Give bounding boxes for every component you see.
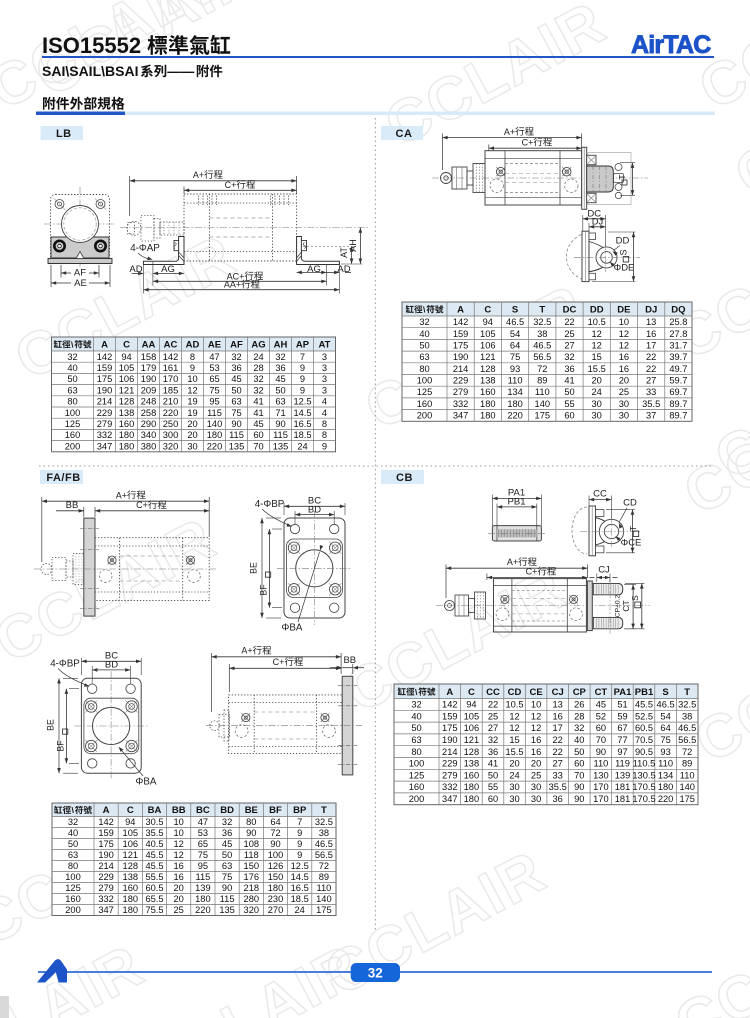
svg-text:24: 24 [297, 441, 307, 451]
svg-text:142: 142 [163, 352, 179, 362]
svg-text:36: 36 [553, 794, 563, 804]
svg-text:64: 64 [510, 340, 520, 350]
svg-text:72: 72 [537, 364, 547, 374]
svg-text:A: A [457, 305, 464, 316]
svg-text:63: 63 [222, 861, 232, 871]
svg-text:279: 279 [98, 883, 114, 893]
svg-text:38: 38 [682, 711, 692, 721]
svg-text:110: 110 [316, 883, 331, 893]
svg-text:60: 60 [564, 411, 574, 421]
svg-text:46.5: 46.5 [315, 839, 333, 849]
svg-text:75: 75 [198, 850, 208, 860]
svg-text:39.7: 39.7 [669, 352, 687, 362]
svg-text:220: 220 [207, 441, 223, 451]
svg-text:59: 59 [617, 711, 627, 721]
svg-text:CE: CE [529, 687, 542, 698]
svg-text:S: S [630, 595, 640, 601]
svg-text:49.7: 49.7 [669, 364, 687, 374]
svg-text:158: 158 [141, 352, 157, 362]
svg-text:46.5: 46.5 [678, 723, 696, 733]
svg-text:36: 36 [488, 747, 498, 757]
svg-text:128: 128 [119, 397, 135, 407]
svg-text:C+: C+ [136, 500, 148, 510]
svg-text:200: 200 [409, 794, 425, 804]
svg-text:45.5: 45.5 [145, 850, 163, 860]
svg-text:BD: BD [220, 805, 234, 816]
svg-text:CP: CP [573, 687, 587, 698]
svg-text:3: 3 [322, 374, 327, 384]
svg-text:25: 25 [174, 905, 184, 915]
svg-text:10: 10 [531, 700, 541, 710]
svg-text:4-ΦBP: 4-ΦBP [50, 659, 80, 670]
svg-text:37: 37 [646, 411, 656, 421]
svg-text:45: 45 [253, 419, 263, 429]
svg-text:45: 45 [222, 839, 232, 849]
svg-text:90: 90 [231, 419, 241, 429]
svg-text:20: 20 [174, 894, 184, 904]
svg-text:3: 3 [322, 352, 327, 362]
svg-text:190: 190 [141, 374, 157, 384]
svg-text:53: 53 [198, 828, 208, 838]
svg-text:25: 25 [488, 711, 498, 721]
svg-text:229: 229 [97, 408, 113, 418]
svg-text:16.5: 16.5 [293, 419, 311, 429]
svg-text:BE: BE [249, 562, 259, 574]
svg-text:CJ: CJ [598, 564, 610, 575]
svg-text:75: 75 [231, 408, 241, 418]
svg-text:138: 138 [123, 872, 139, 882]
svg-text:DJ: DJ [645, 305, 657, 316]
svg-text:9: 9 [297, 839, 302, 849]
svg-text:CB: CB [396, 472, 413, 484]
svg-text:332: 332 [98, 894, 114, 904]
svg-text:119: 119 [615, 759, 630, 769]
svg-text:90: 90 [246, 828, 256, 838]
svg-text:115: 115 [273, 430, 288, 440]
svg-text:16: 16 [531, 735, 541, 745]
svg-text:AE: AE [74, 278, 87, 289]
svg-text:13: 13 [646, 317, 656, 327]
svg-text:30: 30 [619, 411, 629, 421]
svg-text:218: 218 [244, 883, 260, 893]
svg-text:35.5: 35.5 [145, 828, 163, 838]
svg-text:30: 30 [531, 782, 541, 792]
svg-text:180: 180 [207, 430, 223, 440]
svg-text:16: 16 [174, 872, 184, 882]
svg-text:340: 340 [141, 430, 157, 440]
svg-text:AA+: AA+ [224, 280, 241, 290]
svg-text:38: 38 [537, 329, 547, 339]
svg-text:12: 12 [187, 385, 197, 395]
svg-text:126: 126 [268, 861, 284, 871]
svg-text:53: 53 [209, 363, 219, 373]
svg-text:T: T [617, 174, 627, 179]
svg-text:279: 279 [442, 770, 458, 780]
svg-text:121: 121 [123, 850, 139, 860]
svg-text:125: 125 [65, 419, 81, 429]
svg-text:32: 32 [253, 385, 263, 395]
svg-text:32: 32 [419, 317, 429, 327]
svg-text:51: 51 [617, 700, 627, 710]
svg-text:20: 20 [174, 883, 184, 893]
svg-text:50: 50 [275, 385, 285, 395]
svg-text:ISO15552: ISO15552 [42, 33, 141, 58]
svg-text:41: 41 [488, 759, 498, 769]
svg-text:32: 32 [68, 817, 78, 827]
svg-text:32: 32 [275, 352, 285, 362]
svg-text:180: 180 [195, 894, 211, 904]
svg-text:40.5: 40.5 [145, 839, 163, 849]
svg-text:138: 138 [480, 376, 496, 386]
svg-text:8: 8 [322, 419, 327, 429]
svg-text:33: 33 [646, 387, 656, 397]
svg-text:BD: BD [105, 659, 118, 670]
svg-text:110: 110 [535, 387, 550, 397]
svg-text:180: 180 [480, 399, 496, 409]
svg-text:140: 140 [679, 782, 695, 792]
svg-text:16: 16 [646, 329, 656, 339]
svg-text:DQ: DQ [671, 305, 685, 316]
svg-text:AE: AE [208, 340, 221, 351]
svg-text:C: C [468, 687, 475, 698]
svg-text:BP: BP [293, 805, 307, 816]
svg-text:185: 185 [163, 385, 179, 395]
svg-text:94: 94 [125, 817, 135, 827]
svg-text:AF: AF [230, 340, 243, 351]
svg-text:94: 94 [466, 700, 476, 710]
svg-text:175: 175 [97, 374, 113, 384]
svg-text:175: 175 [316, 905, 332, 915]
svg-text:30: 30 [509, 782, 519, 792]
svg-text:30: 30 [187, 441, 197, 451]
svg-text:36: 36 [231, 363, 241, 373]
svg-text:60: 60 [488, 794, 498, 804]
svg-text:64: 64 [660, 723, 670, 733]
svg-text:18.5: 18.5 [291, 894, 309, 904]
svg-text:130: 130 [593, 770, 609, 780]
svg-text:20: 20 [509, 759, 519, 769]
svg-text:41: 41 [564, 376, 574, 386]
svg-text:63: 63 [275, 397, 285, 407]
svg-text:75: 75 [510, 352, 520, 362]
svg-text:229: 229 [98, 872, 114, 882]
svg-text:35.5: 35.5 [642, 399, 660, 409]
svg-text:4: 4 [322, 397, 327, 407]
svg-text:60.5: 60.5 [635, 723, 653, 733]
svg-text:105: 105 [464, 711, 480, 721]
svg-text:170: 170 [593, 794, 609, 804]
svg-text:30: 30 [592, 399, 602, 409]
svg-text:40: 40 [68, 828, 78, 838]
svg-text:110: 110 [680, 770, 695, 780]
svg-text:65.5: 65.5 [145, 894, 163, 904]
svg-text:CT: CT [621, 600, 631, 611]
svg-text:75: 75 [209, 385, 219, 395]
svg-text:63: 63 [411, 735, 421, 745]
svg-text:320: 320 [244, 905, 260, 915]
svg-text:——: —— [167, 64, 195, 79]
svg-text:115: 115 [195, 872, 210, 882]
svg-text:121: 121 [119, 385, 135, 395]
svg-text:36: 36 [564, 364, 574, 374]
svg-text:BB: BB [172, 805, 186, 816]
svg-text:CD: CD [508, 687, 522, 698]
svg-text:106: 106 [119, 374, 135, 384]
svg-text:121: 121 [464, 735, 480, 745]
svg-text:170.5: 170.5 [632, 782, 655, 792]
svg-text:9: 9 [300, 363, 305, 373]
svg-text:175: 175 [453, 340, 469, 350]
svg-text:180: 180 [464, 782, 480, 792]
svg-text:80: 80 [419, 364, 429, 374]
svg-text:47: 47 [209, 352, 219, 362]
svg-text:71: 71 [275, 408, 285, 418]
svg-text:190: 190 [453, 352, 469, 362]
svg-text:25: 25 [619, 387, 629, 397]
svg-text:DD: DD [590, 305, 604, 316]
svg-text:118: 118 [244, 850, 259, 860]
svg-text:80: 80 [67, 397, 77, 407]
svg-text:128: 128 [123, 861, 139, 871]
svg-text:22: 22 [564, 317, 574, 327]
svg-text:80: 80 [411, 747, 421, 757]
svg-text:160: 160 [65, 894, 81, 904]
svg-text:320: 320 [163, 441, 179, 451]
svg-text:BE: BE [46, 719, 56, 731]
svg-text:160: 160 [65, 430, 81, 440]
svg-text:7: 7 [297, 817, 302, 827]
svg-text:142: 142 [453, 317, 469, 327]
svg-text:75: 75 [660, 735, 670, 745]
svg-text:AH: AH [348, 239, 358, 252]
svg-text:12.5: 12.5 [291, 861, 309, 871]
svg-text:16.5: 16.5 [291, 883, 309, 893]
svg-text:12: 12 [619, 340, 629, 350]
svg-text:290: 290 [141, 419, 157, 429]
svg-text:67: 67 [617, 723, 627, 733]
svg-text:16: 16 [619, 352, 629, 362]
svg-text:347: 347 [97, 441, 113, 451]
svg-text:9: 9 [322, 441, 327, 451]
svg-text:220: 220 [163, 408, 179, 418]
svg-text:100: 100 [65, 408, 81, 418]
svg-text:159: 159 [98, 828, 114, 838]
svg-text:28: 28 [574, 711, 584, 721]
svg-text:DC: DC [563, 305, 577, 316]
svg-text:180: 180 [658, 782, 674, 792]
svg-text:106: 106 [464, 723, 480, 733]
svg-text:60: 60 [574, 759, 584, 769]
svg-text:32: 32 [564, 352, 574, 362]
svg-text:175: 175 [535, 411, 551, 421]
svg-text:24: 24 [509, 770, 519, 780]
svg-text:36: 36 [275, 363, 285, 373]
svg-text:12: 12 [592, 340, 602, 350]
svg-text:138: 138 [464, 759, 480, 769]
svg-text:3: 3 [322, 363, 327, 373]
svg-text:190: 190 [98, 850, 114, 860]
svg-text:93: 93 [510, 364, 520, 374]
svg-text:159: 159 [97, 363, 113, 373]
svg-text:300: 300 [163, 430, 179, 440]
svg-text:180: 180 [119, 430, 135, 440]
svg-text:140: 140 [535, 399, 551, 409]
svg-text:180: 180 [268, 883, 284, 893]
svg-text:106: 106 [123, 839, 139, 849]
svg-text:12: 12 [509, 711, 519, 721]
svg-text:30.5: 30.5 [145, 817, 163, 827]
svg-text:200: 200 [65, 441, 81, 451]
svg-text:52: 52 [596, 711, 606, 721]
svg-text:45: 45 [275, 374, 285, 384]
svg-text:BC: BC [196, 805, 210, 816]
svg-text:32: 32 [67, 352, 77, 362]
svg-text:89.7: 89.7 [669, 411, 687, 421]
svg-text:T: T [628, 526, 638, 531]
svg-text:45.5: 45.5 [635, 700, 653, 710]
svg-text:110: 110 [593, 759, 608, 769]
svg-text:A+: A+ [193, 170, 204, 180]
svg-text:60: 60 [253, 430, 263, 440]
svg-text:50: 50 [67, 374, 77, 384]
svg-text:72: 72 [319, 861, 329, 871]
svg-text:55: 55 [564, 399, 574, 409]
svg-text:A+: A+ [507, 557, 518, 567]
svg-text:T: T [321, 805, 327, 816]
svg-text:332: 332 [442, 782, 458, 792]
svg-text:30: 30 [592, 411, 602, 421]
svg-text:22: 22 [488, 700, 498, 710]
svg-text:CC: CC [593, 489, 607, 500]
svg-text:32.5: 32.5 [315, 817, 333, 827]
svg-text:180: 180 [119, 441, 135, 451]
svg-text:46.5: 46.5 [657, 700, 675, 710]
svg-text:15: 15 [592, 352, 602, 362]
svg-text:10: 10 [174, 828, 184, 838]
svg-text:220: 220 [658, 794, 674, 804]
svg-text:170: 170 [163, 374, 179, 384]
svg-text:FA/FB: FA/FB [46, 472, 80, 484]
svg-text:179: 179 [141, 363, 157, 373]
svg-text:190: 190 [442, 735, 458, 745]
svg-text:135: 135 [229, 441, 245, 451]
svg-text:214: 214 [98, 861, 114, 871]
svg-text:65: 65 [209, 374, 219, 384]
svg-text:24: 24 [253, 352, 263, 362]
svg-text:55: 55 [488, 782, 498, 792]
svg-text:46.5: 46.5 [506, 317, 524, 327]
svg-text:160: 160 [409, 782, 425, 792]
svg-text:22: 22 [553, 735, 563, 745]
svg-text:229: 229 [442, 759, 458, 769]
svg-text:38: 38 [319, 828, 329, 838]
svg-text:9: 9 [190, 363, 195, 373]
svg-text:25: 25 [531, 770, 541, 780]
svg-text:BA: BA [148, 805, 162, 816]
svg-text:14.5: 14.5 [293, 408, 311, 418]
svg-text:142: 142 [98, 817, 114, 827]
svg-text:A+: A+ [504, 127, 515, 137]
svg-text:220: 220 [195, 905, 211, 915]
svg-text:ΦCE: ΦCE [621, 538, 642, 549]
svg-text:332: 332 [453, 399, 469, 409]
svg-text:347: 347 [98, 905, 114, 915]
svg-text:CC: CC [486, 687, 500, 698]
svg-text:T: T [539, 305, 545, 316]
svg-text:45.5: 45.5 [145, 861, 163, 871]
svg-text:347: 347 [453, 411, 469, 421]
svg-text:7: 7 [300, 352, 305, 362]
svg-text:209: 209 [141, 385, 157, 395]
svg-text:20: 20 [619, 376, 629, 386]
svg-text:280: 280 [244, 894, 260, 904]
svg-text:12: 12 [174, 839, 184, 849]
svg-text:100: 100 [409, 759, 425, 769]
svg-text:50: 50 [68, 839, 78, 849]
svg-text:180: 180 [480, 411, 496, 421]
svg-text:50: 50 [419, 340, 429, 350]
svg-text:A+: A+ [116, 490, 127, 500]
svg-text:9: 9 [300, 385, 305, 395]
svg-text:12: 12 [531, 723, 541, 733]
svg-text:97: 97 [617, 747, 627, 757]
svg-text:142: 142 [442, 700, 458, 710]
svg-text:32: 32 [222, 817, 232, 827]
svg-text:10.5: 10.5 [505, 700, 523, 710]
svg-text:80: 80 [246, 817, 256, 827]
svg-text:C+: C+ [522, 137, 534, 147]
svg-text:27: 27 [488, 723, 498, 733]
svg-text:54: 54 [660, 711, 670, 721]
svg-text:110: 110 [658, 759, 673, 769]
svg-text:160: 160 [123, 883, 139, 893]
svg-text:200: 200 [417, 411, 433, 421]
svg-text:BB: BB [343, 655, 356, 666]
svg-text:50: 50 [231, 385, 241, 395]
svg-text:200: 200 [65, 905, 81, 915]
svg-text:50: 50 [222, 850, 232, 860]
svg-text:175: 175 [98, 839, 114, 849]
svg-text:12: 12 [619, 329, 629, 339]
svg-text:90: 90 [574, 794, 584, 804]
svg-text:135: 135 [219, 905, 235, 915]
svg-text:12: 12 [509, 723, 519, 733]
svg-text:161: 161 [163, 363, 179, 373]
svg-text:160: 160 [417, 399, 433, 409]
svg-text:27: 27 [646, 376, 656, 386]
svg-text:100: 100 [65, 872, 81, 882]
svg-text:CJ: CJ [552, 687, 564, 698]
svg-text:70.5: 70.5 [635, 735, 653, 745]
svg-text:90.5: 90.5 [635, 747, 653, 757]
svg-text:210: 210 [163, 397, 179, 407]
svg-text:DD: DD [616, 236, 630, 247]
svg-text:35.5: 35.5 [549, 782, 567, 792]
svg-text:30: 30 [619, 399, 629, 409]
svg-text:115: 115 [229, 430, 244, 440]
svg-text:AC: AC [164, 340, 178, 351]
svg-text:50: 50 [488, 770, 498, 780]
svg-text:60: 60 [596, 723, 606, 733]
svg-text:41: 41 [253, 397, 263, 407]
svg-text:8: 8 [190, 352, 195, 362]
svg-text:220: 220 [507, 411, 523, 421]
svg-text:C: C [484, 305, 491, 316]
svg-text:12: 12 [174, 850, 184, 860]
svg-text:27.8: 27.8 [669, 329, 687, 339]
svg-text:24: 24 [592, 387, 602, 397]
svg-text:134: 134 [658, 770, 674, 780]
